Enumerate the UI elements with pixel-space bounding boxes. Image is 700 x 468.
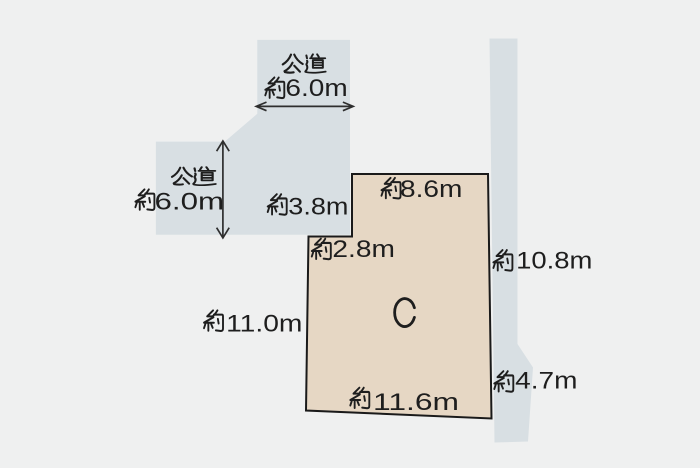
svg-text:2.8m: 2.8m (332, 236, 395, 263)
svg-text:4.7m: 4.7m (515, 368, 577, 395)
svg-text:6.0m: 6.0m (285, 75, 347, 102)
svg-text:11.0m: 11.0m (226, 311, 302, 338)
svg-text:3.8m: 3.8m (288, 193, 348, 220)
svg-text:6.0m: 6.0m (155, 188, 225, 215)
svg-text:8.6m: 8.6m (400, 176, 462, 203)
svg-text:11.6m: 11.6m (373, 389, 459, 416)
svg-text:10.8m: 10.8m (516, 247, 592, 274)
